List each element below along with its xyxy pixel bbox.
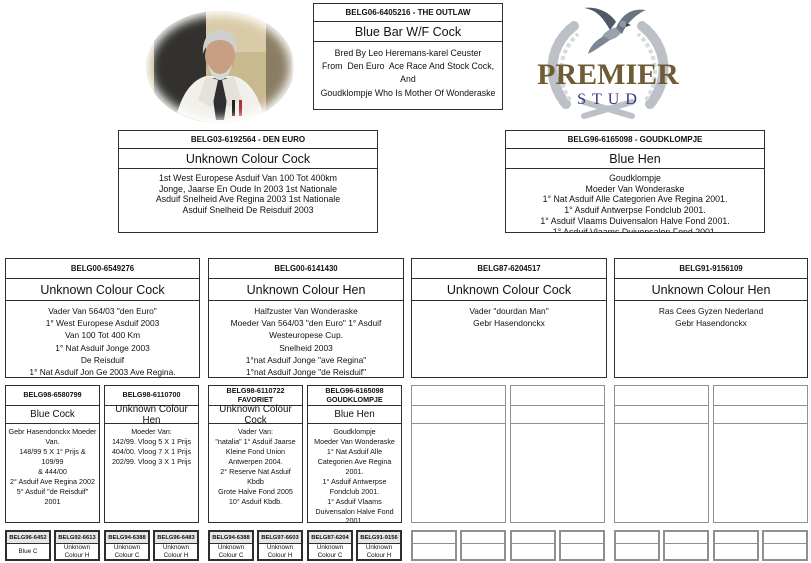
- bird-box-g5-2: BELG92-6613 Unknown Colour H: [54, 530, 100, 561]
- ring-number: BELG94-6388: [210, 532, 252, 544]
- bird-box-sire: BELG03-6192564 - DEN EURO Unknown Colour…: [118, 130, 378, 233]
- ring-number: [615, 386, 708, 406]
- bird-box-g3-3: BELG87-6204517 Unknown Colour Cock Vader…: [411, 258, 607, 378]
- colour-line: [665, 544, 707, 559]
- logo-premier-text: PREMIER: [537, 58, 679, 91]
- achievements-text: Vader "dourdan Man" Gebr Hasendonckx: [412, 301, 606, 377]
- colour-line: [561, 544, 603, 559]
- achievements-text: Bred By Leo Heremans-karel Ceuster From …: [314, 42, 502, 109]
- breeder-photo-image: [140, 8, 300, 126]
- bird-box-g5-6: BELG97-6603 Unknown Colour H: [257, 530, 303, 561]
- bird-box-g4-3: BELG98-6110722 FAVORIET Unknown Colour C…: [208, 385, 303, 523]
- ring-number: [764, 532, 806, 544]
- bird-box-g5-1: BELG96-6452 Blue C: [5, 530, 51, 561]
- colour-line: Unknown Colour C: [210, 544, 252, 560]
- colour-line: [615, 406, 708, 424]
- ring-number: [616, 532, 658, 544]
- colour-line: [616, 544, 658, 559]
- ring-number: BELG96-6165098 - GOUDKLOMPJE: [506, 131, 764, 149]
- ring-number: [412, 386, 505, 406]
- colour-line: Unknown Colour C: [309, 544, 351, 560]
- ring-number: BELG98-6580799: [6, 386, 99, 406]
- colour-line: Blue C: [7, 544, 49, 559]
- colour-line: [462, 544, 504, 559]
- colour-line: Blue Hen: [506, 149, 764, 169]
- colour-line: [715, 544, 757, 559]
- pedigree-page: BELG06-6405216 - THE OUTLAW Blue Bar W/F…: [0, 0, 811, 563]
- colour-line: Unknown Colour C: [106, 544, 148, 560]
- ring-number: [715, 532, 757, 544]
- ring-number: BELG97-6603: [259, 532, 301, 544]
- colour-line: Unknown Colour H: [155, 544, 197, 560]
- colour-line: [714, 406, 807, 424]
- bird-box-g5-11: [510, 530, 556, 561]
- ring-number: [714, 386, 807, 406]
- ring-number: [561, 532, 603, 544]
- ring-number: BELG00-6549276: [6, 259, 199, 279]
- ring-number: [512, 532, 554, 544]
- breeder-photo: [140, 8, 300, 126]
- colour-line: Unknown Colour H: [358, 544, 400, 560]
- ring-number: [462, 532, 504, 544]
- ring-number: BELG92-6613: [56, 532, 98, 544]
- bird-box-g5-10: [460, 530, 506, 561]
- achievements-text: [615, 424, 708, 522]
- ring-number: BELG91-9156: [358, 532, 400, 544]
- bird-box-g5-3: BELG94-6388 Unknown Colour C: [104, 530, 150, 561]
- bird-box-g3-2: BELG00-6141430 Unknown Colour Hen Halfzu…: [208, 258, 404, 378]
- bird-box-g5-7: BELG87-6204 Unknown Colour C: [307, 530, 353, 561]
- bird-box-g5-16: [762, 530, 808, 561]
- bird-box-g5-12: [559, 530, 605, 561]
- colour-line: Unknown Colour Hen: [209, 279, 403, 301]
- colour-line: Blue Bar W/F Cock: [314, 22, 502, 42]
- ring-number: BELG96-6483: [155, 532, 197, 544]
- colour-line: [511, 406, 604, 424]
- achievements-text: Gebr Hasendonckx Moeder Van. 148/99 5 X …: [6, 424, 99, 522]
- pigeon-icon: [584, 8, 646, 54]
- bird-box-g4-1: BELG98-6580799 Blue Cock Gebr Hasendonck…: [5, 385, 100, 523]
- achievements-text: [511, 424, 604, 522]
- bird-box-g5-8: BELG91-9156 Unknown Colour H: [356, 530, 402, 561]
- ring-number: BELG96-6165098 GOUDKLOMPJE: [308, 386, 401, 406]
- ring-number: BELG94-6388: [106, 532, 148, 544]
- bird-box-g5-9: [411, 530, 457, 561]
- ring-number: BELG87-6204: [309, 532, 351, 544]
- ring-number: [413, 532, 455, 544]
- achievements-text: Goudklompje Moeder Van Wonderaske 1° Nat…: [308, 424, 401, 523]
- colour-line: Unknown Colour Cock: [209, 406, 302, 424]
- bird-box-g5-5: BELG94-6388 Unknown Colour C: [208, 530, 254, 561]
- colour-line: Unknown Colour Cock: [119, 149, 377, 169]
- ring-number: [511, 386, 604, 406]
- achievements-text: Halfzuster Van Wonderaske Moeder Van 564…: [209, 301, 403, 378]
- achievements-text: [412, 424, 505, 522]
- logo-stud-text: STUD: [577, 91, 643, 108]
- bird-box-g4-7: [614, 385, 709, 523]
- ring-number: BELG06-6405216 - THE OUTLAW: [314, 4, 502, 22]
- bird-box-g5-14: [663, 530, 709, 561]
- premier-stud-logo: PREMIER STUD: [526, 4, 690, 126]
- achievements-text: Moeder Van: 142/99. Vloog 5 X 1 Prijs 40…: [105, 424, 198, 522]
- ring-number: BELG96-6452: [7, 532, 49, 544]
- bird-box-g4-5: [411, 385, 506, 523]
- colour-line: [764, 544, 806, 559]
- ring-number: BELG00-6141430: [209, 259, 403, 279]
- bird-box-g4-6: [510, 385, 605, 523]
- achievements-text: Vader Van 564/03 "den Euro" 1° West Euro…: [6, 301, 199, 378]
- bird-box-g4-8: [713, 385, 808, 523]
- colour-line: [412, 406, 505, 424]
- colour-line: [512, 544, 554, 559]
- colour-line: Unknown Colour Hen: [615, 279, 807, 301]
- ring-number: BELG91-9156109: [615, 259, 807, 279]
- ring-number: BELG03-6192564 - DEN EURO: [119, 131, 377, 149]
- colour-line: Unknown Colour H: [259, 544, 301, 560]
- bird-box-g4-2: BELG98-6110700 Unknown Colour Hen Moeder…: [104, 385, 199, 523]
- bird-box-g5-13: [614, 530, 660, 561]
- achievements-text: [714, 424, 807, 522]
- bird-box-g4-4: BELG96-6165098 GOUDKLOMPJE Blue Hen Goud…: [307, 385, 402, 523]
- achievements-text: Ras Cees Gyzen Nederland Gebr Hasendonck…: [615, 301, 807, 377]
- colour-line: Unknown Colour Hen: [105, 406, 198, 424]
- bird-box-g3-4: BELG91-9156109 Unknown Colour Hen Ras Ce…: [614, 258, 808, 378]
- bird-box-g5-4: BELG96-6483 Unknown Colour H: [153, 530, 199, 561]
- bird-box-main: BELG06-6405216 - THE OUTLAW Blue Bar W/F…: [313, 3, 503, 110]
- bird-box-g3-1: BELG00-6549276 Unknown Colour Cock Vader…: [5, 258, 200, 378]
- achievements-text: Goudklompje Moeder Van Wonderaske 1° Nat…: [506, 169, 764, 233]
- achievements-text: 1st West Europese Asduif Van 100 Tot 400…: [119, 169, 377, 232]
- colour-line: [413, 544, 455, 559]
- bird-box-g5-15: [713, 530, 759, 561]
- colour-line: Blue Cock: [6, 406, 99, 424]
- colour-line: Unknown Colour Cock: [6, 279, 199, 301]
- colour-line: Blue Hen: [308, 406, 401, 424]
- bird-box-dam: BELG96-6165098 - GOUDKLOMPJE Blue Hen Go…: [505, 130, 765, 233]
- ring-number: [665, 532, 707, 544]
- ring-number: BELG87-6204517: [412, 259, 606, 279]
- achievements-text: Vader Van: "natalia" 1° Asduif Jaarse Kl…: [209, 424, 302, 522]
- colour-line: Unknown Colour Cock: [412, 279, 606, 301]
- colour-line: Unknown Colour H: [56, 544, 98, 560]
